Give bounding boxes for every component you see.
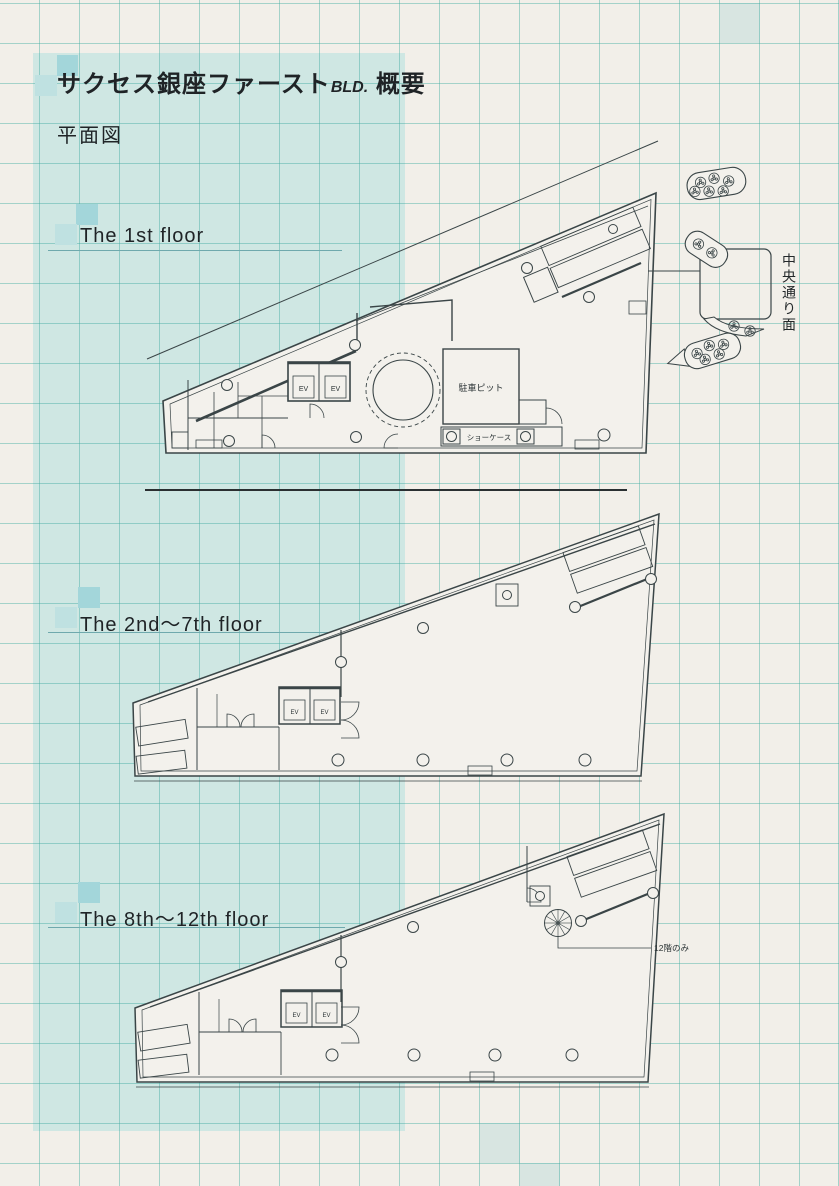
elevator-label: EV: [322, 1013, 330, 1019]
column: [408, 1049, 420, 1061]
showcase-strip: ショーケース: [441, 427, 562, 446]
column: [584, 292, 595, 303]
column: [417, 754, 429, 766]
column: [501, 754, 513, 766]
column: [598, 429, 610, 441]
plan-2nd-7th-floor: EV EV: [133, 514, 659, 781]
column: [351, 432, 362, 443]
elevator-bank: EV EV: [281, 990, 342, 1027]
column: [408, 922, 419, 933]
column: [609, 225, 618, 234]
elevator-label: EV: [290, 710, 298, 716]
elevator-label: EV: [320, 710, 328, 716]
planter: [685, 165, 748, 201]
planter: [664, 330, 743, 377]
planter: [681, 227, 732, 272]
elevator-label: EV: [299, 386, 309, 393]
showcase-label: ショーケース: [467, 433, 512, 442]
column: [326, 1049, 338, 1061]
parking-pit-label: 駐車ピット: [458, 382, 503, 393]
column: [332, 754, 344, 766]
elevator-label: EV: [292, 1013, 300, 1019]
floor-plan-drawings: EV EV 駐車ピット ショーケース: [0, 0, 839, 1186]
spiral-stair-note: 12階のみ: [654, 943, 689, 953]
spiral-staircase: [545, 910, 572, 937]
column: [576, 916, 587, 927]
elevator-label: EV: [331, 386, 341, 393]
column: [224, 436, 235, 447]
street-landscaping: [648, 165, 771, 376]
column: [350, 340, 361, 351]
column: [566, 1049, 578, 1061]
column: [522, 263, 533, 274]
building-outline: [133, 514, 659, 776]
column: [579, 754, 591, 766]
column: [503, 591, 512, 600]
column: [336, 957, 347, 968]
plan-8th-12th-floor: 12階のみ EV EV: [135, 814, 689, 1087]
column: [648, 888, 659, 899]
elevator-bank: EV EV: [279, 687, 340, 724]
column: [222, 380, 233, 391]
column: [418, 623, 429, 634]
plan-1st-floor: EV EV 駐車ピット ショーケース: [147, 141, 771, 453]
column: [646, 574, 657, 585]
column: [336, 657, 347, 668]
column: [536, 892, 545, 901]
elevator-bank: EV EV: [288, 362, 350, 401]
column: [570, 602, 581, 613]
column: [489, 1049, 501, 1061]
